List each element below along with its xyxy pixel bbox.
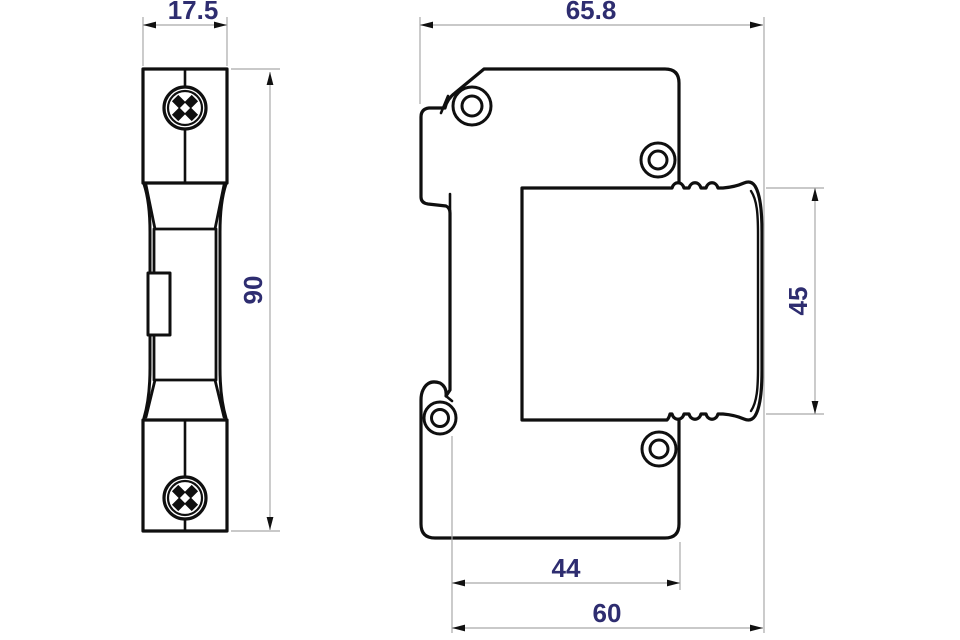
arrow-left-icon [420, 22, 433, 29]
dimension-label-module-height: 45 [783, 287, 813, 316]
arrow-up-icon [812, 188, 819, 201]
dimension-label-side-width: 65.8 [566, 0, 617, 25]
side-module-outline [522, 182, 762, 420]
arrow-right-icon [750, 625, 763, 632]
side-view [421, 69, 762, 538]
arrow-right-icon [667, 580, 680, 587]
dimension-label-front-height: 90 [238, 276, 268, 305]
screw-hole-top-right-icon [641, 143, 675, 177]
front-neck-right [220, 184, 226, 418]
arrow-down-icon [267, 517, 274, 530]
front-view [143, 69, 227, 531]
dimension-label-front-width: 17.5 [168, 0, 219, 25]
arrow-up-icon [267, 72, 274, 85]
arrow-left-icon [143, 22, 156, 29]
technical-drawing: 17.5 90 65.8 45 44 60 [0, 0, 960, 640]
dimension-label-mounting-width: 44 [552, 553, 581, 583]
screw-hole-top-left-icon [453, 87, 491, 125]
phillips-screw-top-icon [164, 87, 206, 129]
arrow-down-icon [812, 401, 819, 414]
screw-hole-bottom-left-icon [424, 402, 456, 434]
screw-hole-bottom-right-icon [642, 432, 676, 466]
arrow-left-icon [452, 580, 465, 587]
arrow-left-icon [452, 625, 465, 632]
drawing-canvas: 17.5 90 65.8 45 44 60 [0, 0, 960, 640]
dimension-label-base-width: 60 [593, 598, 622, 628]
arrow-right-icon [750, 22, 763, 29]
phillips-screw-bottom-icon [164, 477, 206, 519]
front-label-window [148, 273, 170, 335]
